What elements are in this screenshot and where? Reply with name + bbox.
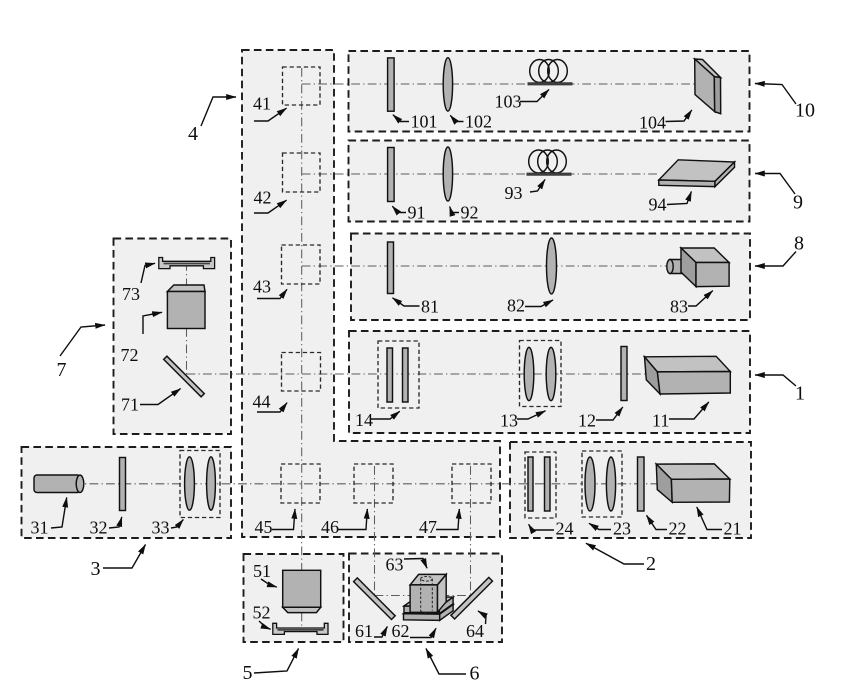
- svg-text:52: 52: [253, 603, 271, 623]
- svg-text:14: 14: [355, 410, 373, 430]
- svg-text:72: 72: [121, 345, 139, 365]
- svg-text:4: 4: [188, 123, 198, 145]
- svg-text:51: 51: [253, 561, 271, 581]
- svg-text:12: 12: [578, 411, 596, 431]
- svg-text:3: 3: [91, 558, 101, 580]
- svg-text:102: 102: [465, 112, 492, 132]
- svg-text:43: 43: [253, 277, 271, 297]
- svg-text:91: 91: [408, 203, 426, 223]
- svg-text:22: 22: [669, 519, 687, 539]
- svg-text:104: 104: [639, 113, 666, 133]
- svg-text:24: 24: [556, 519, 574, 539]
- svg-text:93: 93: [505, 183, 523, 203]
- svg-text:9: 9: [793, 192, 803, 214]
- svg-text:32: 32: [90, 518, 108, 538]
- svg-text:101: 101: [411, 112, 438, 132]
- svg-text:23: 23: [613, 519, 631, 539]
- svg-text:1: 1: [795, 383, 805, 405]
- svg-text:21: 21: [724, 519, 742, 539]
- svg-text:46: 46: [321, 517, 339, 537]
- svg-text:63: 63: [386, 555, 404, 575]
- svg-text:83: 83: [670, 297, 688, 317]
- svg-text:13: 13: [500, 411, 518, 431]
- svg-text:64: 64: [466, 621, 484, 641]
- svg-text:7: 7: [57, 359, 67, 381]
- svg-text:41: 41: [253, 94, 271, 114]
- svg-text:33: 33: [152, 518, 170, 538]
- svg-text:81: 81: [421, 297, 439, 317]
- svg-text:82: 82: [507, 296, 525, 316]
- svg-text:42: 42: [254, 188, 272, 208]
- svg-text:73: 73: [122, 284, 140, 304]
- svg-text:62: 62: [392, 621, 410, 641]
- svg-text:94: 94: [649, 195, 667, 215]
- svg-text:61: 61: [355, 621, 373, 641]
- svg-text:47: 47: [419, 517, 437, 537]
- svg-text:92: 92: [461, 203, 479, 223]
- svg-text:11: 11: [652, 411, 669, 431]
- svg-text:31: 31: [31, 518, 49, 538]
- svg-text:6: 6: [470, 663, 480, 685]
- svg-text:71: 71: [121, 395, 139, 415]
- svg-text:10: 10: [795, 100, 815, 122]
- svg-text:44: 44: [253, 392, 271, 412]
- svg-text:45: 45: [255, 517, 273, 537]
- svg-text:103: 103: [495, 92, 522, 112]
- svg-text:5: 5: [243, 662, 253, 684]
- svg-text:2: 2: [646, 553, 656, 575]
